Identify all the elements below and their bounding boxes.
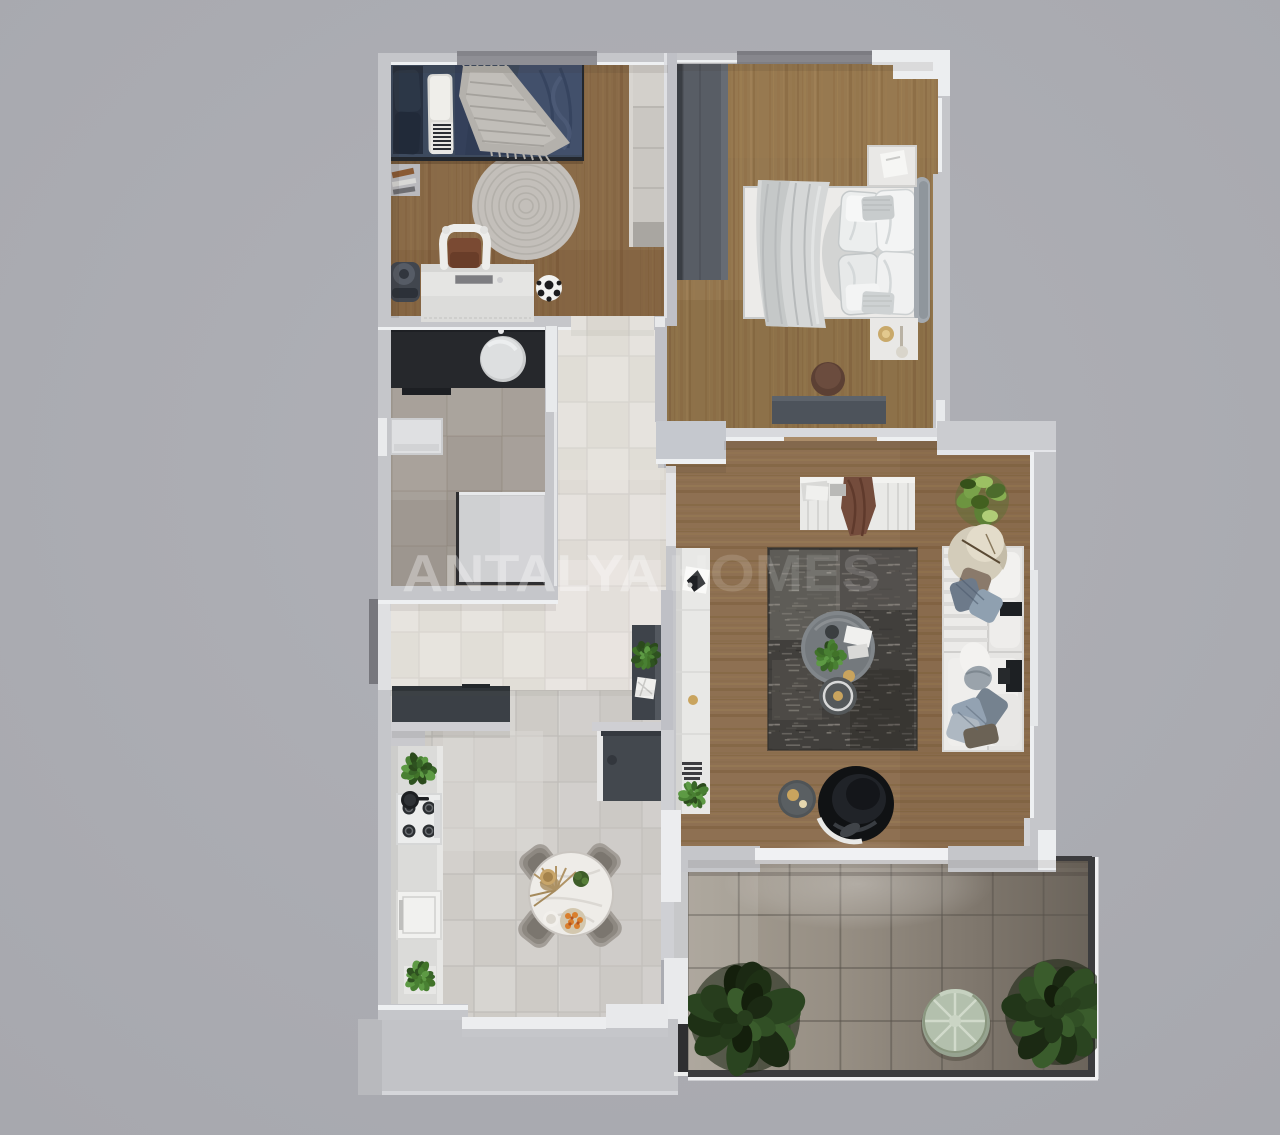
svg-text:ANTALYA: ANTALYA xyxy=(402,545,660,603)
svg-text:HOMES: HOMES xyxy=(668,545,880,603)
